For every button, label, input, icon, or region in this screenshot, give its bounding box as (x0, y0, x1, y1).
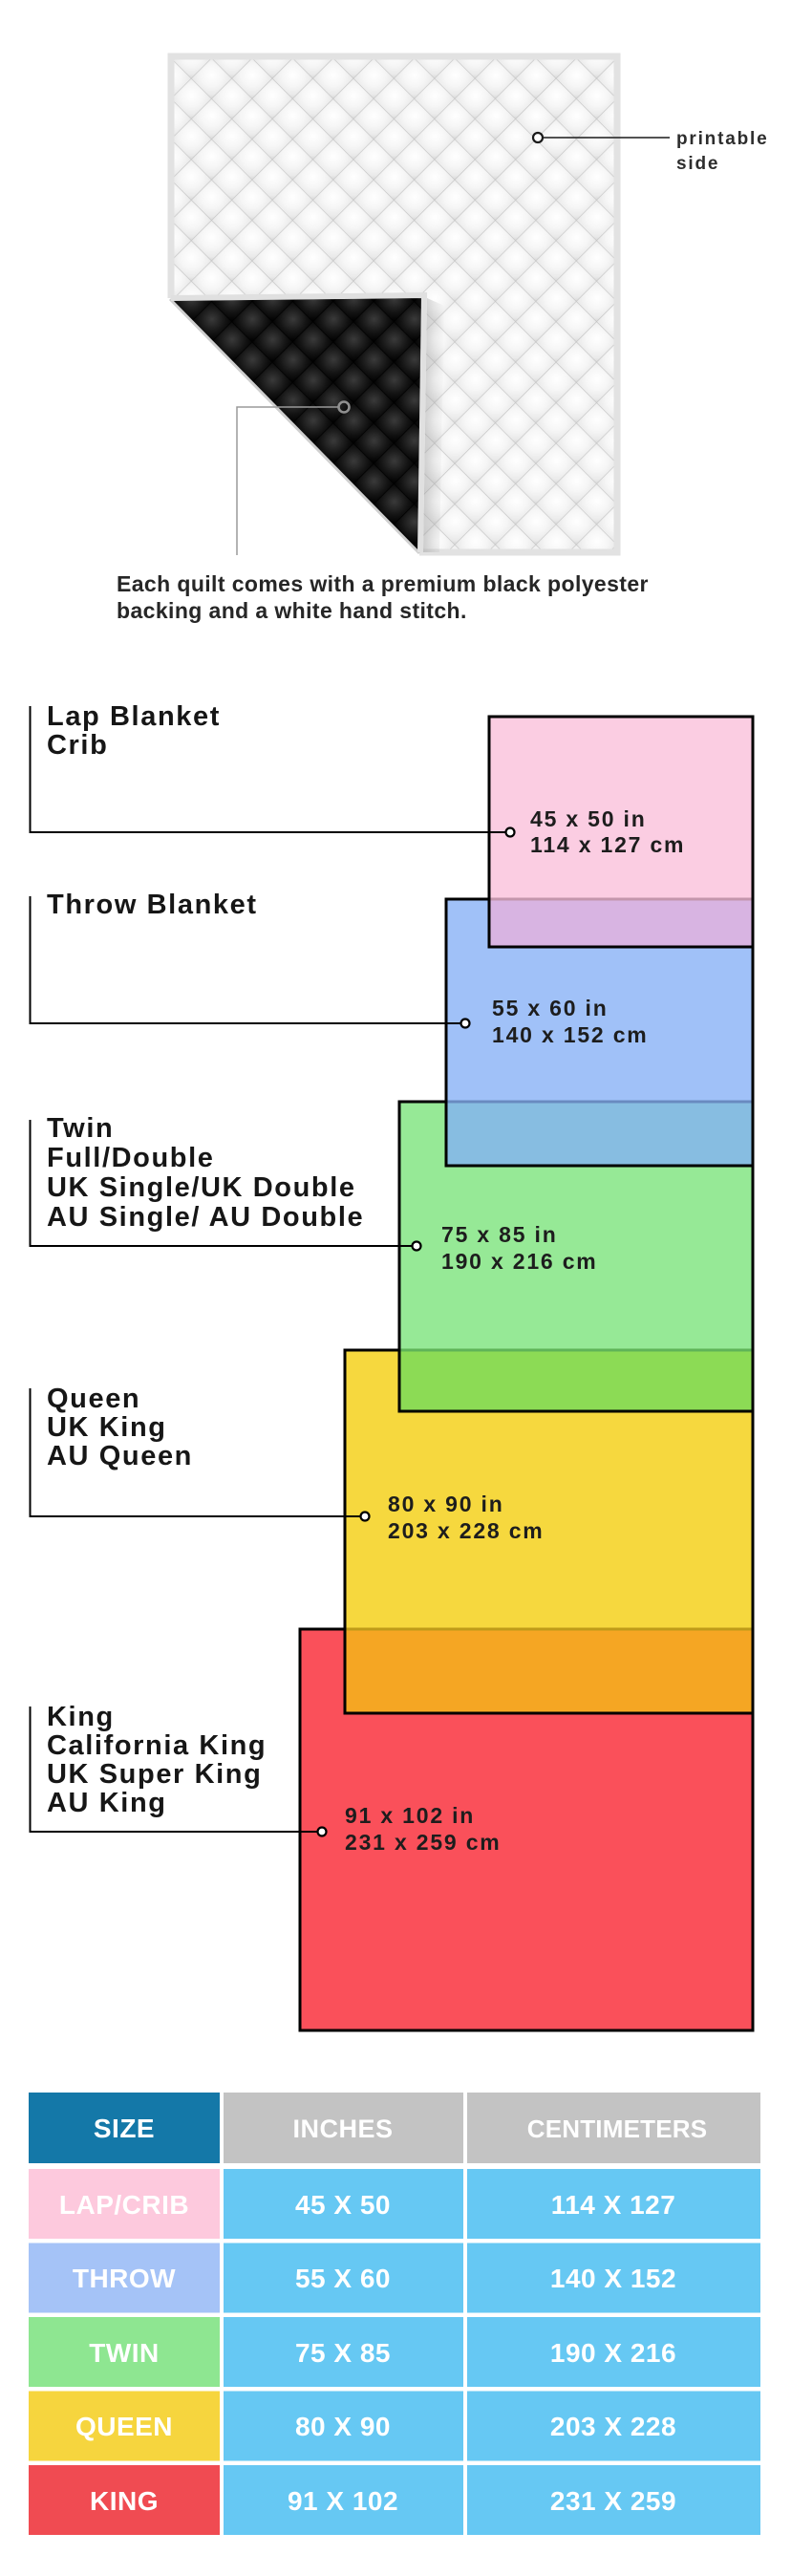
svg-text:King: King (47, 1702, 115, 1732)
svg-text:140 x 152 cm: 140 x 152 cm (492, 1022, 649, 1047)
svg-text:75 X 85: 75 X 85 (295, 2338, 391, 2368)
svg-text:UK Super King: UK Super King (47, 1759, 262, 1790)
svg-text:55 X 60: 55 X 60 (295, 2264, 391, 2293)
svg-text:203 x 228 cm: 203 x 228 cm (388, 1518, 545, 1543)
svg-text:INCHES: INCHES (292, 2114, 393, 2143)
svg-text:45 x 50 in: 45 x 50 in (530, 806, 647, 831)
svg-text:75 x 85 in: 75 x 85 in (441, 1222, 558, 1247)
svg-text:AU Single/ AU Double: AU Single/ AU Double (47, 1202, 364, 1233)
svg-text:80 x 90 in: 80 x 90 in (388, 1492, 504, 1516)
svg-text:backing and a white hand stitc: backing and a white hand stitch. (117, 598, 467, 623)
svg-text:QUEEN: QUEEN (75, 2412, 173, 2441)
svg-text:Full/Double: Full/Double (47, 1143, 214, 1173)
svg-text:CENTIMETERS: CENTIMETERS (527, 2114, 708, 2143)
svg-text:LAP/CRIB: LAP/CRIB (59, 2190, 189, 2220)
svg-text:91 X 102: 91 X 102 (288, 2486, 398, 2516)
svg-text:45 X 50: 45 X 50 (295, 2190, 391, 2220)
svg-text:80 X 90: 80 X 90 (295, 2412, 391, 2441)
svg-text:231 x 259 cm: 231 x 259 cm (345, 1830, 502, 1855)
svg-text:UK Single/UK Double: UK Single/UK Double (47, 1172, 356, 1203)
svg-text:Queen: Queen (47, 1384, 140, 1414)
svg-text:California King: California King (47, 1730, 267, 1761)
svg-text:91 x 102 in: 91 x 102 in (345, 1803, 475, 1828)
svg-text:Twin: Twin (47, 1113, 114, 1144)
svg-text:TWIN: TWIN (89, 2338, 160, 2368)
svg-text:114 X 127: 114 X 127 (551, 2190, 676, 2220)
svg-text:55 x 60 in: 55 x 60 in (492, 996, 609, 1020)
svg-text:203 X 228: 203 X 228 (550, 2412, 676, 2441)
svg-text:190 X 216: 190 X 216 (550, 2338, 676, 2368)
svg-text:231 X 259: 231 X 259 (550, 2486, 676, 2516)
svg-text:KING: KING (90, 2486, 159, 2516)
svg-text:THROW: THROW (73, 2264, 176, 2293)
svg-text:printable: printable (676, 129, 768, 149)
svg-text:Each quilt comes with a premiu: Each quilt comes with a premium black po… (117, 571, 649, 596)
svg-text:AU King: AU King (47, 1788, 167, 1818)
svg-text:UK King: UK King (47, 1412, 167, 1443)
svg-text:190 x 216 cm: 190 x 216 cm (441, 1249, 598, 1274)
svg-text:140 X 152: 140 X 152 (550, 2264, 676, 2293)
svg-text:Lap Blanket: Lap Blanket (47, 701, 221, 732)
svg-text:114 x 127 cm: 114 x 127 cm (530, 832, 685, 857)
svg-text:Crib: Crib (47, 730, 108, 761)
svg-text:Throw Blanket: Throw Blanket (47, 890, 258, 920)
svg-text:AU Queen: AU Queen (47, 1441, 193, 1471)
svg-text:side: side (676, 154, 719, 174)
svg-text:SIZE: SIZE (94, 2114, 155, 2143)
